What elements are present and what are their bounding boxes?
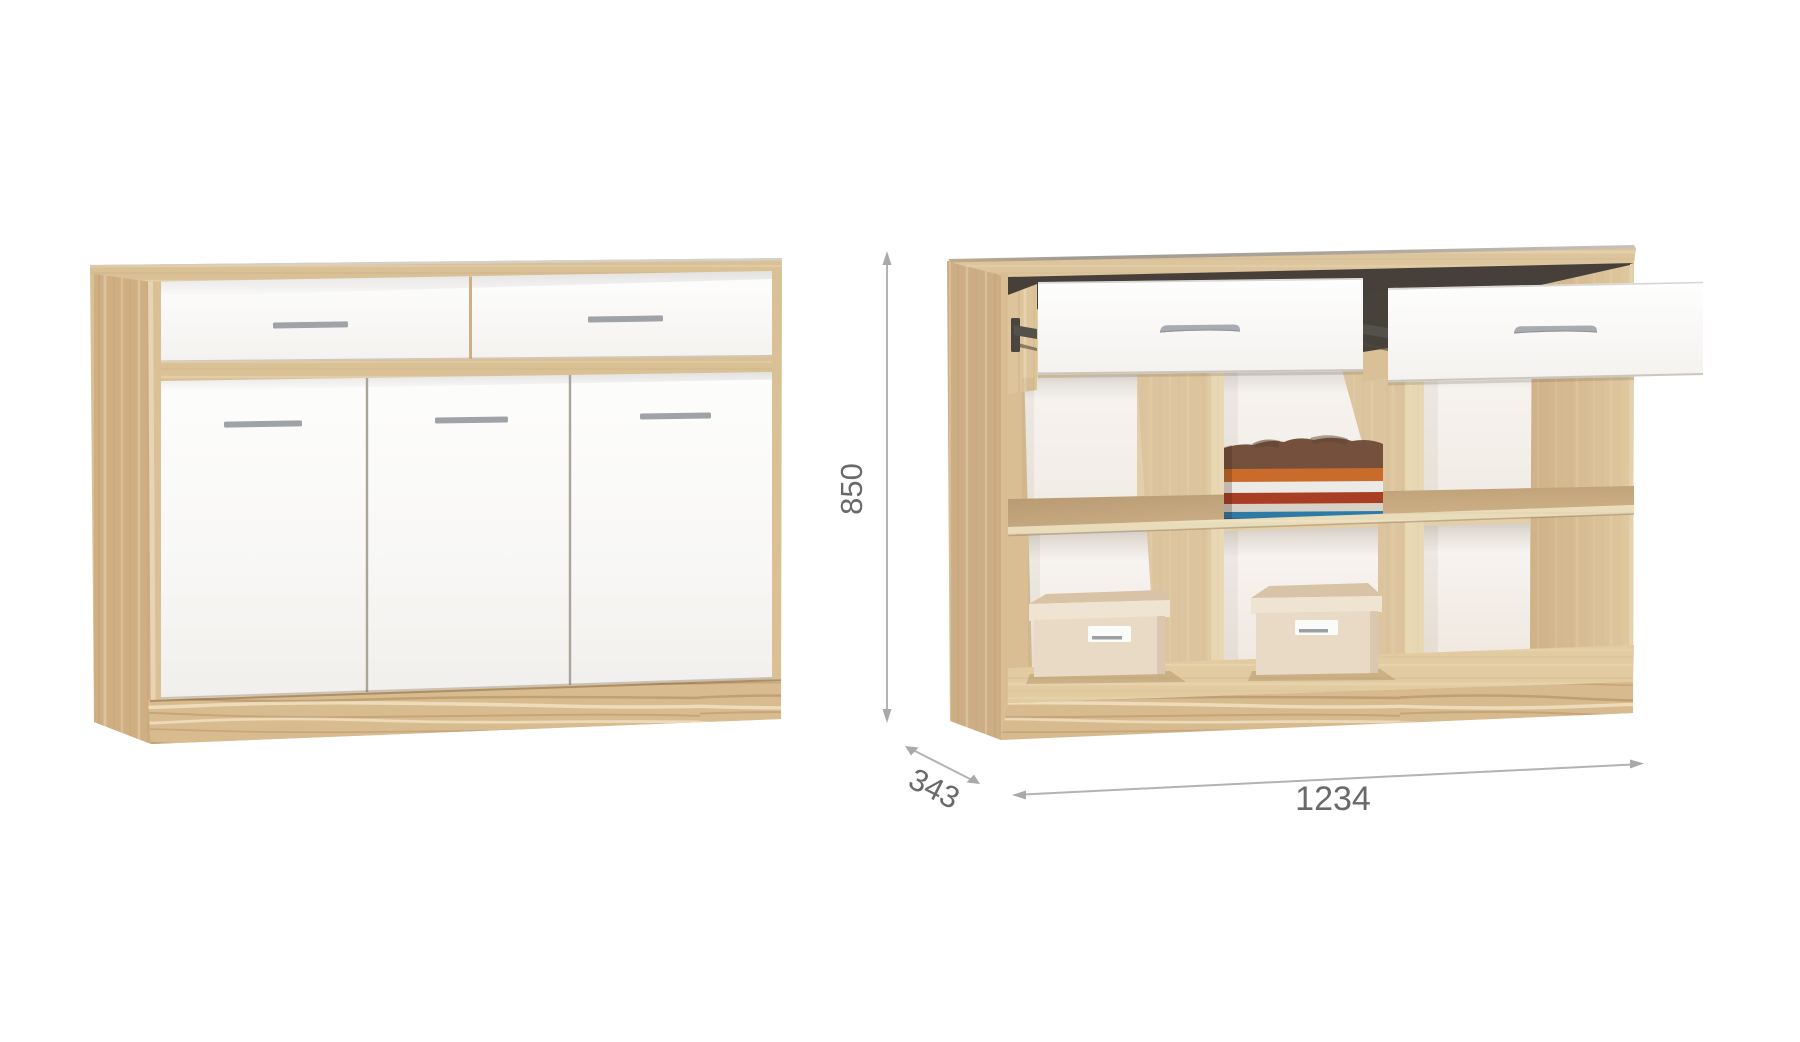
svg-text:1234: 1234 [1295, 780, 1371, 818]
svg-text:850: 850 [834, 463, 869, 515]
